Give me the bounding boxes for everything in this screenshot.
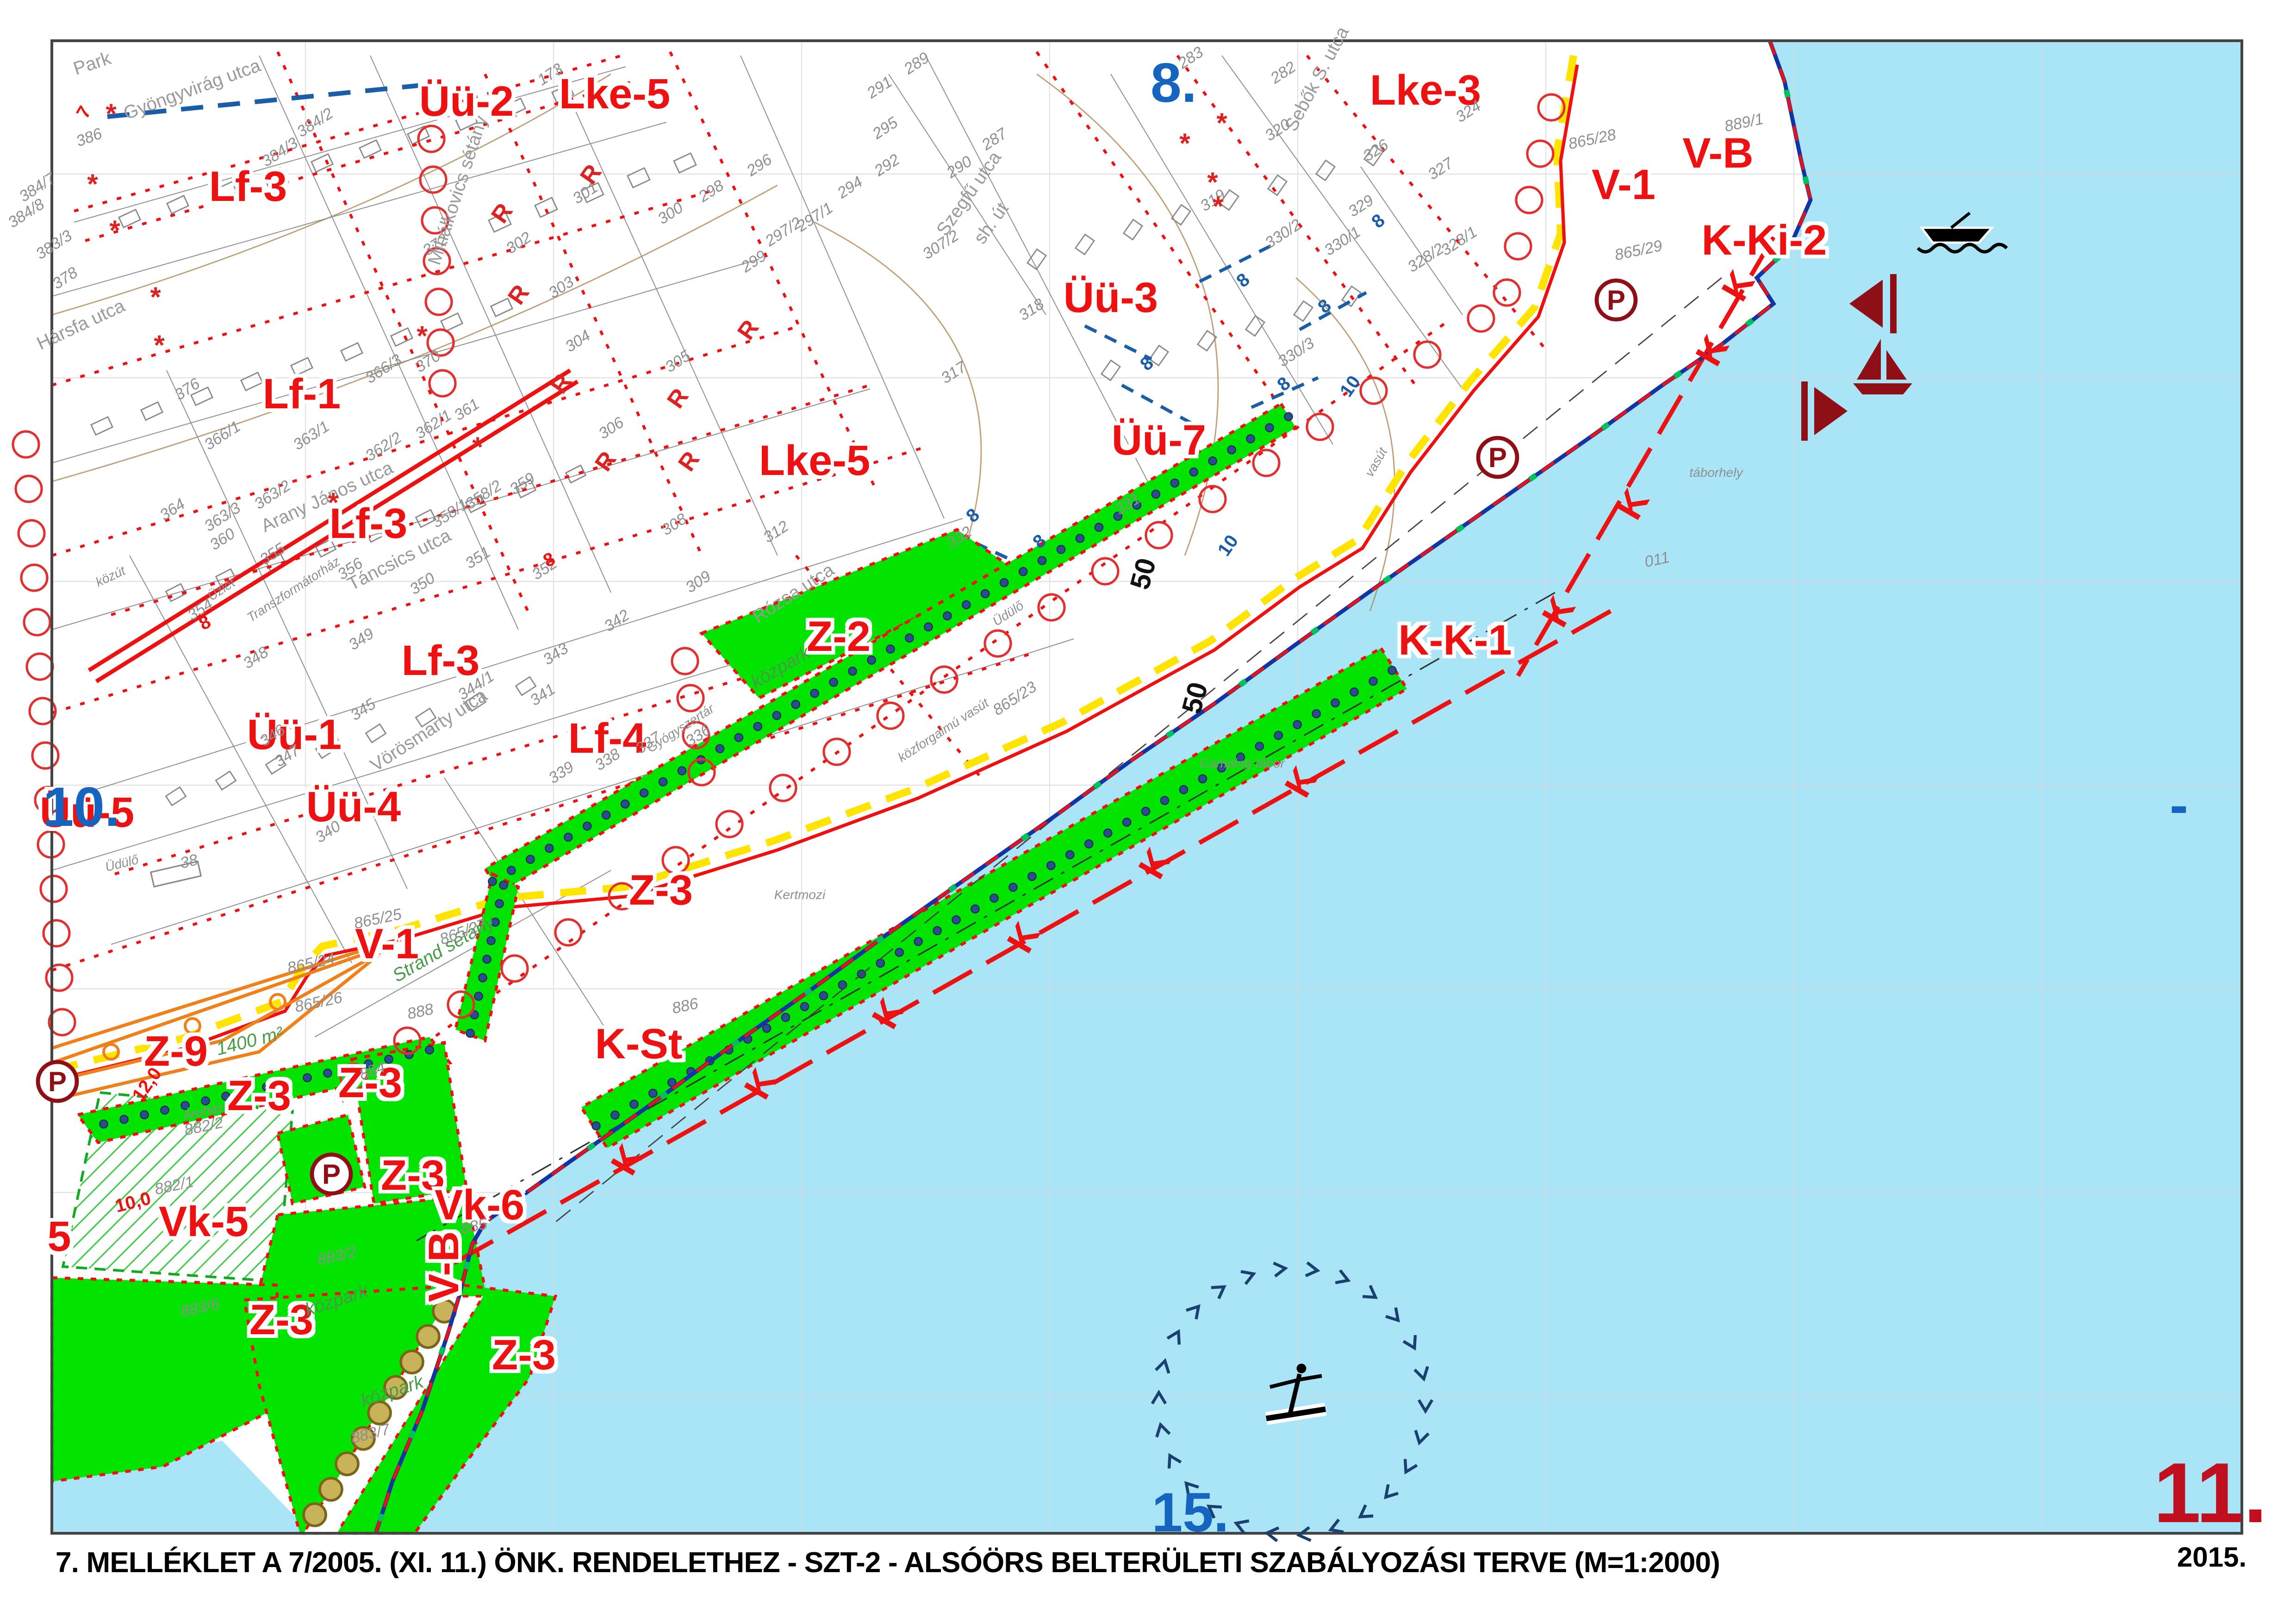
tree-dot [1085, 840, 1093, 848]
tree-dot [1256, 742, 1264, 750]
tree-dot [1104, 829, 1112, 837]
tree-dot [1180, 786, 1188, 794]
tree-dot [1047, 862, 1055, 870]
tree-dot [583, 822, 591, 831]
tree-dot [1057, 545, 1065, 554]
tree-dot [487, 937, 495, 945]
tree-dot [876, 959, 884, 968]
tree-dot [943, 612, 952, 620]
tree-dot [905, 634, 914, 642]
tree-dot [678, 767, 686, 775]
park-tree-circle [336, 1453, 358, 1475]
tree-dot [1019, 568, 1027, 576]
tree-dot [495, 899, 504, 908]
tree-dot [716, 744, 724, 753]
map-year: 2015. [2177, 1543, 2246, 1574]
tree-dot [1208, 457, 1217, 465]
street-tree-circle [13, 431, 39, 457]
tree-dot [754, 723, 762, 731]
tree-dot [782, 1013, 790, 1022]
tree-dot [1189, 468, 1198, 476]
park-tree-circle [401, 1351, 423, 1373]
sailboat-icon [1853, 383, 1912, 394]
tree-dot [1274, 731, 1282, 740]
tree-dot [602, 811, 610, 819]
tree-dot [1066, 850, 1074, 859]
tree-dot [886, 645, 895, 653]
tree-dot [283, 1078, 291, 1087]
tree-dot [640, 789, 648, 797]
tree-dot [1199, 775, 1207, 783]
tree-dot [952, 916, 960, 924]
tree-dot [1000, 579, 1008, 587]
tree-dot [479, 974, 487, 982]
tree-dot [829, 678, 838, 687]
tree-dot [507, 866, 516, 874]
tree-dot [981, 590, 989, 598]
tree-dot [867, 656, 876, 664]
tree-dot [924, 623, 933, 631]
tree-dot [1142, 807, 1150, 816]
tree-dot [1123, 818, 1131, 826]
tree-dot [1265, 424, 1274, 432]
tree-dot [1293, 720, 1301, 729]
tree-dot [1369, 677, 1377, 686]
park-tree-circle [368, 1402, 391, 1424]
park-tree-circle [304, 1504, 326, 1526]
tree-dot [630, 1100, 638, 1108]
tree-dot [181, 1101, 189, 1110]
tree-dot [1152, 490, 1160, 499]
surfer-icon [1297, 1364, 1307, 1374]
tree-dot [735, 733, 743, 742]
tree-dot [772, 712, 781, 720]
tree-dot [1331, 699, 1339, 707]
street-tree-circle [19, 520, 44, 546]
tree-dot [1388, 666, 1396, 675]
tree-dot [1038, 556, 1046, 565]
tree-dot [303, 1074, 311, 1082]
tree-dot [1350, 688, 1358, 696]
tree-dot [385, 1055, 393, 1063]
tree-dot [425, 1046, 434, 1054]
tree-dot [140, 1111, 149, 1119]
tree-dot [488, 877, 497, 886]
tree-dot [1237, 753, 1245, 762]
tree-dot [1170, 479, 1179, 487]
tree-dot [1114, 512, 1122, 520]
parking-icon: P [322, 1159, 341, 1190]
tree-dot [914, 937, 922, 946]
tree-dot [820, 992, 828, 1000]
tree-dot [474, 992, 483, 1000]
tree-dot [971, 905, 979, 913]
tree-dot [1076, 534, 1084, 543]
street-tree-circle [24, 609, 50, 635]
tree-dot [1161, 796, 1169, 805]
tree-dot [526, 855, 535, 863]
arrow-left-icon [1890, 274, 1897, 333]
park-tree-circle [417, 1325, 439, 1348]
tree-dot [791, 700, 800, 709]
zoning-map-canvas: PPPP [0, 0, 2296, 1624]
tree-dot [962, 601, 971, 609]
map-caption: 7. MELLÉKLET A 7/2005. (XI. 11.) ÖNK. RE… [56, 1548, 1720, 1581]
tree-dot [1009, 883, 1017, 892]
tree-dot [649, 1089, 657, 1098]
parking-icon: P [48, 1066, 67, 1097]
tree-dot [933, 926, 941, 935]
tree-dot [1246, 435, 1255, 443]
tree-dot [324, 1069, 332, 1077]
tree-dot [545, 844, 554, 852]
tree-dot [1028, 872, 1036, 881]
parking-icon: P [1607, 285, 1625, 316]
tree-dot [201, 1097, 210, 1105]
tree-dot [611, 1111, 619, 1119]
tree-dot [483, 955, 491, 963]
tree-dot [1312, 710, 1320, 718]
tree-dot [262, 1083, 271, 1091]
tree-dot [810, 689, 819, 698]
tree-dot [1095, 523, 1103, 531]
arrow-right-icon [1801, 381, 1808, 441]
tree-dot [848, 667, 857, 675]
tree-dot [990, 894, 998, 902]
tree-dot [161, 1106, 169, 1114]
tree-dot [364, 1060, 373, 1068]
street-tree-circle [21, 565, 47, 591]
tree-dot [499, 881, 508, 889]
tree-dot [1227, 446, 1236, 454]
tree-dot [222, 1092, 230, 1100]
tree-dot [659, 778, 667, 786]
tree-dot [564, 833, 572, 842]
parking-icon: P [1488, 442, 1507, 473]
tree-dot [1133, 501, 1141, 509]
tree-dot [1218, 764, 1226, 772]
tree-dot [592, 1122, 600, 1130]
park-tree-circle [320, 1478, 342, 1500]
tree-dot [242, 1087, 250, 1096]
park-tree-circle [385, 1376, 407, 1399]
street-tree-circle [27, 654, 53, 680]
boat-icon [1922, 228, 1992, 243]
tree-dot [491, 918, 499, 926]
tree-dot [100, 1120, 108, 1128]
street-tree-circle [16, 476, 42, 502]
tree-dot [1284, 412, 1293, 421]
tree-dot [120, 1115, 128, 1124]
tree-dot [895, 948, 903, 956]
tree-dot [621, 800, 629, 808]
map-page: PPPP Lf-3Üü-2Lke-5Lke-3V-BV-1K-Ki-2Üü-3Ü… [0, 0, 2296, 1624]
park-tree-circle [352, 1427, 374, 1449]
tree-dot [466, 1029, 474, 1037]
tree-dot [801, 1002, 809, 1011]
